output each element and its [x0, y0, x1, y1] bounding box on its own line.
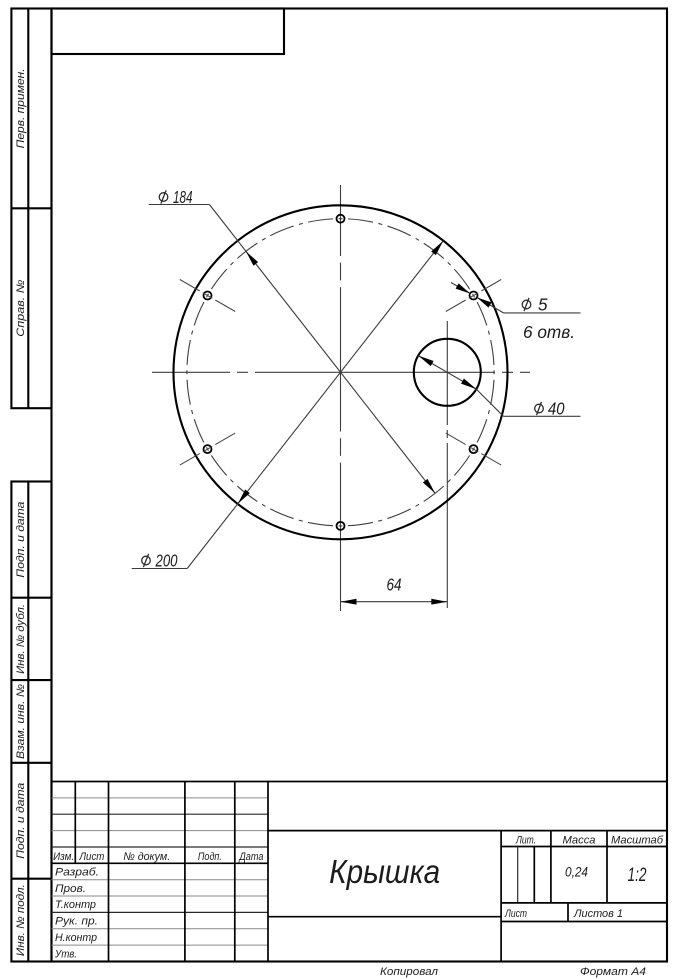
svg-text:Пров.: Пров.: [55, 883, 86, 895]
svg-text:Подп.: Подп.: [198, 851, 222, 863]
svg-text:Изм.: Изм.: [53, 851, 74, 863]
svg-text:64: 64: [387, 575, 402, 595]
svg-text:Лит.: Лит.: [515, 835, 536, 847]
svg-text:Разраб.: Разраб.: [55, 867, 99, 879]
svg-text:Масса: Масса: [563, 835, 596, 847]
svg-text:Копировал: Копировал: [380, 966, 439, 978]
svg-text:184: 184: [173, 187, 193, 207]
svg-text:200: 200: [155, 551, 178, 571]
svg-text:Взам. инв. №: Взам. инв. №: [15, 684, 27, 759]
svg-text:0,24: 0,24: [565, 864, 588, 880]
svg-text:Формат А4: Формат А4: [580, 966, 646, 978]
svg-text:5: 5: [538, 295, 548, 315]
svg-text:Инв. № подл.: Инв. № подл.: [15, 884, 27, 956]
svg-text:1:2: 1:2: [628, 865, 647, 886]
svg-text:40: 40: [548, 399, 565, 419]
svg-text:Подп. и дата: Подп. и дата: [15, 502, 27, 578]
svg-text:Дата: Дата: [238, 851, 264, 863]
svg-text:Утв.: Утв.: [54, 948, 77, 960]
svg-text:Подп. и дата: Подп. и дата: [15, 783, 27, 859]
svg-text:Рук. пр.: Рук. пр.: [55, 916, 98, 928]
svg-text:Справ. №: Справ. №: [15, 280, 27, 337]
svg-text:Перв. примен.: Перв. примен.: [15, 68, 27, 148]
svg-text:Лист: Лист: [504, 908, 527, 920]
svg-text:Инв. № дубл.: Инв. № дубл.: [15, 604, 27, 674]
svg-text:Крышка: Крышка: [329, 853, 440, 890]
svg-text:Н.контр: Н.контр: [55, 932, 97, 944]
svg-text:Листов 1: Листов 1: [573, 908, 623, 920]
svg-text:6 отв.: 6 отв.: [523, 322, 575, 342]
svg-text:Лист: Лист: [79, 851, 105, 863]
svg-text:№ докум.: № докум.: [123, 851, 170, 863]
svg-text:Масштаб: Масштаб: [611, 835, 664, 847]
svg-text:Т.контр: Т.контр: [55, 899, 96, 911]
